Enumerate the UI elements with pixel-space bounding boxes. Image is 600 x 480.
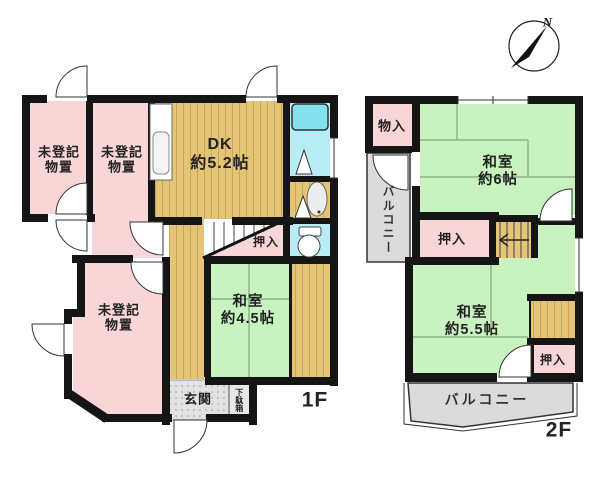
label-balcony-side: バルコニー xyxy=(381,185,395,255)
label-oshiire-1f: 押入 xyxy=(253,235,279,249)
bathtub xyxy=(292,104,328,130)
label-compass-north: N xyxy=(543,14,553,29)
kitchen-sink xyxy=(153,132,169,174)
label-washitsu-6: 和室 約6帖 xyxy=(478,155,518,189)
floorplan-page: 未登記 物置 未登記 物置 DK 約5.2帖 押入 和室 約4.5帖 未登記 物… xyxy=(0,0,600,480)
label-genkan: 玄関 xyxy=(184,391,212,406)
label-floor1: 1F xyxy=(302,389,329,414)
floor2-plan xyxy=(365,96,583,431)
door-arc xyxy=(246,66,277,97)
wood-alcove-2f xyxy=(531,301,575,338)
label-floor2: 2F xyxy=(546,419,573,444)
label-dk: DK 約5.2帖 xyxy=(190,136,249,174)
label-getabako: 下駄箱 xyxy=(234,388,243,412)
door-arc xyxy=(56,220,87,251)
label-storage-a: 未登記 物置 xyxy=(38,145,80,176)
staircase-2f xyxy=(493,222,531,258)
label-washitsu-55: 和室 約5.5帖 xyxy=(445,305,499,339)
label-storage-c: 未登記 物置 xyxy=(98,303,140,334)
hallway xyxy=(169,219,204,379)
label-oshiire-2f-lower: 押入 xyxy=(540,353,566,367)
door-arc xyxy=(56,66,87,97)
label-balcony-bottom: バルコニー xyxy=(445,392,530,409)
wood-strip-1f xyxy=(292,263,332,377)
label-oshiire-2f-upper: 押入 xyxy=(438,231,466,246)
floor1-plan xyxy=(22,66,338,453)
label-storage-b: 未登記 物置 xyxy=(101,145,143,176)
window-2f-top xyxy=(458,96,528,104)
toilet xyxy=(298,227,321,257)
window-2f-right xyxy=(575,238,583,292)
door-arc xyxy=(32,324,64,356)
label-washitsu-45: 和室 約4.5帖 xyxy=(221,294,275,328)
washbasin xyxy=(307,182,327,216)
kitchen-counter xyxy=(150,104,172,180)
window-1f-right xyxy=(330,138,338,178)
door-arc xyxy=(174,420,207,453)
label-monoiri: 物入 xyxy=(378,118,406,133)
